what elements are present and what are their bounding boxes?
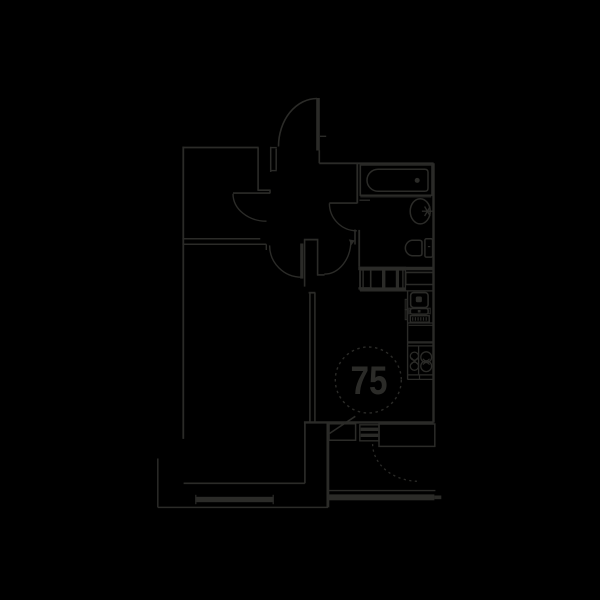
svg-text:75: 75 — [351, 359, 388, 403]
